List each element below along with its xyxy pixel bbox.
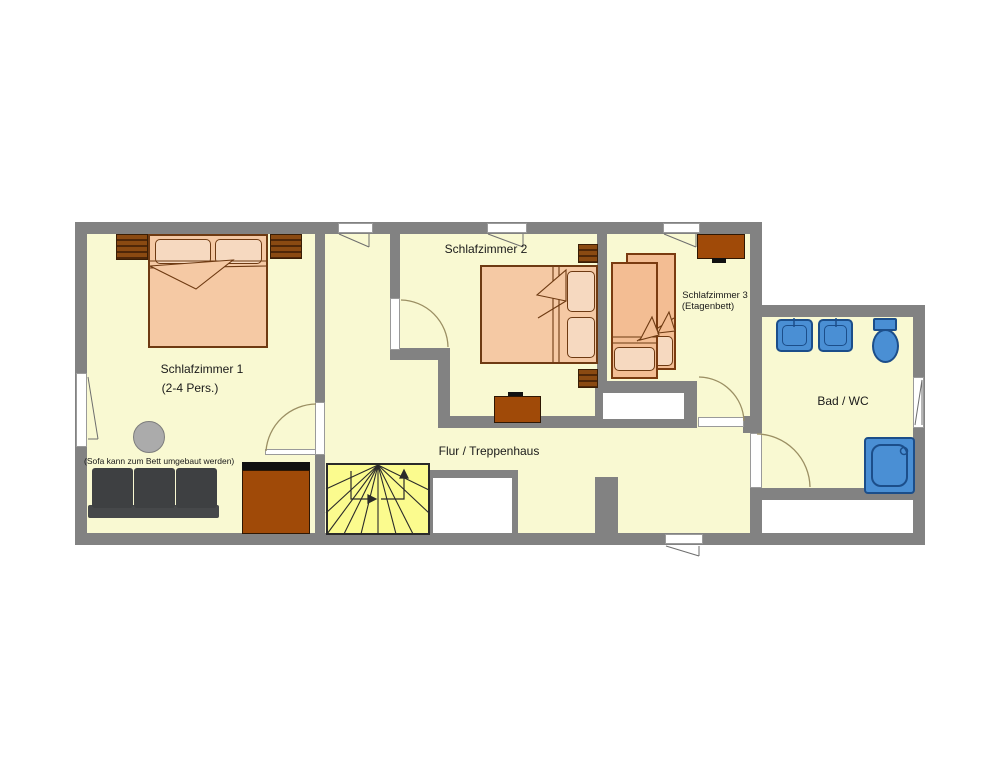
wall-bath-left-upper: [750, 317, 762, 433]
bath-shower-tray: [871, 444, 908, 487]
wall-corridor-stub: [595, 477, 618, 535]
sz1-sofa-cushion-2: [134, 468, 175, 508]
wall-void-right: [512, 478, 518, 535]
sz1-sofa-cushion-3: [176, 468, 217, 508]
floor-plan: Schlafzimmer 1 (2-4 Pers.) (Sofa kann zu…: [0, 0, 1000, 769]
sz2-dresser: [494, 396, 541, 423]
sz3-pillow-lower: [614, 347, 655, 371]
wall-bath-top: [750, 305, 925, 317]
sz1-side-table: [133, 421, 165, 453]
wall-sz1-right-upper: [315, 222, 325, 402]
stair-void: [433, 478, 512, 535]
sz3-dresser-handle: [712, 258, 726, 263]
window-stairwell-top: [338, 223, 373, 233]
sz1-wardrobe: [242, 470, 310, 534]
sz1-sofa-cushion-1: [92, 468, 133, 508]
wall-bath-left-lower: [750, 488, 762, 533]
bath-sink-2-basin: [824, 325, 847, 346]
door-bath: [750, 433, 762, 488]
sz2-pillow-top: [567, 271, 595, 312]
wall-sz2-sz3-divider: [597, 222, 607, 393]
wall-sz1-right-lower: [315, 455, 325, 535]
door-sz1-panel: [265, 449, 316, 455]
room-bedtype-schlafzimmer3: (Etagenbett): [682, 301, 734, 312]
wall-outer-bottom: [75, 533, 925, 545]
staircase: [326, 463, 430, 535]
room-capacity-schlafzimmer1: (2-4 Pers.): [162, 381, 219, 395]
wall-sz2-left: [390, 222, 400, 298]
closet: [603, 393, 684, 419]
door-sz2: [390, 298, 400, 350]
window-sz1-left: [76, 373, 87, 447]
room-label-flur: Flur / Treppenhaus: [439, 444, 540, 458]
door-sz1: [315, 402, 325, 455]
room-label-bad-wc: Bad / WC: [817, 394, 868, 408]
balcony-area: [762, 500, 913, 533]
bath-shower: [864, 437, 915, 494]
sz1-pillow-left: [155, 239, 211, 264]
sz2-nightstand-bottom: [578, 369, 598, 388]
window-sz3-top: [663, 223, 700, 233]
sz1-pillow-right: [215, 239, 262, 264]
wall-outer-top: [75, 222, 762, 234]
bath-sink-1-basin: [782, 325, 807, 346]
wall-outer-right-upper: [750, 222, 762, 317]
window-bath-right: [913, 377, 924, 428]
room-label-schlafzimmer2: Schlafzimmer 2: [445, 242, 528, 256]
sz1-nightstand-right: [270, 234, 302, 259]
window-glyph-bottom: [666, 546, 699, 556]
bath-sink-2: [818, 319, 853, 352]
sz3-dresser: [697, 234, 745, 259]
window-sz2-top: [487, 223, 527, 233]
bath-toilet-bowl: [872, 329, 899, 363]
room-label-schlafzimmer1: Schlafzimmer 1: [161, 362, 244, 376]
room-label-schlafzimmer3: Schlafzimmer 3: [682, 290, 747, 301]
bath-sink-1: [776, 319, 813, 352]
sz2-pillow-bottom: [567, 317, 595, 358]
door-sz3: [698, 417, 744, 427]
sz2-nightstand-top: [578, 244, 598, 263]
window-corridor-bottom: [665, 534, 703, 544]
wall-void-top: [427, 470, 518, 478]
room-note-schlafzimmer1: (Sofa kann zum Bett umgebaut werden): [84, 456, 234, 466]
sz1-wardrobe-top: [242, 462, 310, 470]
sz1-nightstand-left: [116, 234, 148, 260]
